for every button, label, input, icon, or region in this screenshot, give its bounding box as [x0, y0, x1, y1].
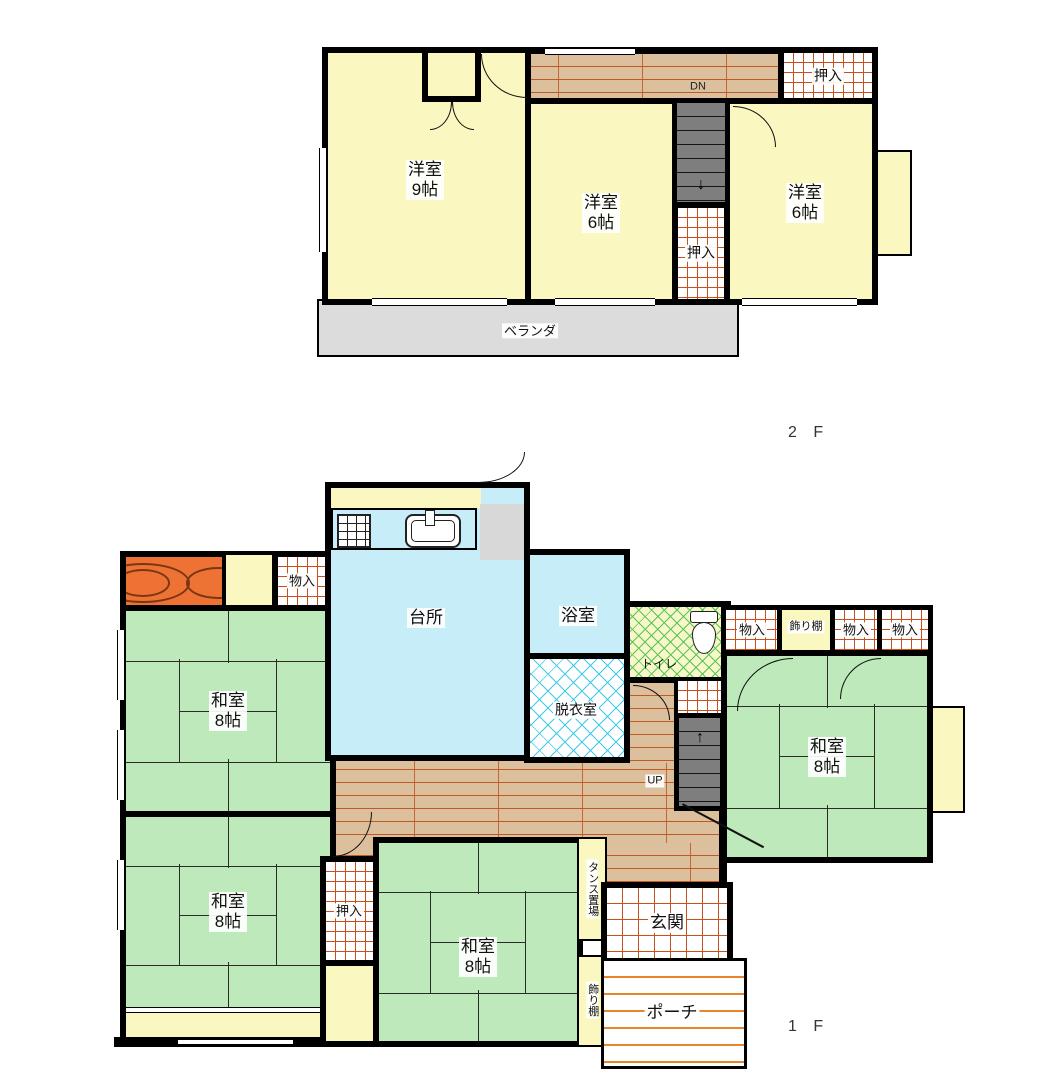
kitchen-window-strip: [331, 488, 481, 508]
label-tansu: タンス置場: [586, 860, 598, 919]
stairs-down-arrow-icon: ↓: [697, 177, 705, 193]
room-size: 8帖: [215, 912, 241, 931]
window: [742, 298, 857, 306]
room-size: 8帖: [215, 711, 241, 730]
label-monoire-r1: 物入: [737, 622, 767, 637]
label-oshiire-2f-topright: 押入: [812, 68, 844, 85]
room-name: 洋室: [408, 160, 442, 179]
tokonoma-alcove: [120, 551, 228, 611]
label-dressing: 脱衣室: [553, 702, 599, 719]
label-porch: ポーチ: [645, 1003, 700, 1023]
room-size: 8帖: [465, 957, 491, 976]
window: [372, 298, 507, 306]
closet-western9: [422, 47, 481, 102]
label-toilet: トイレ: [639, 657, 679, 671]
room-name: 和室: [461, 937, 495, 956]
window: [545, 48, 635, 55]
kitchen-counter: [331, 508, 477, 550]
window: [117, 630, 125, 700]
kitchen-entry-mat: [480, 504, 524, 560]
room-label-western6-right: 洋室 6帖: [786, 183, 824, 223]
toilet-icon: [689, 611, 719, 655]
room-label-western6-center: 洋室 6帖: [582, 193, 620, 233]
label-stairs-down: DN: [688, 81, 708, 94]
label-monoire-topleft: 物入: [287, 573, 317, 588]
corridor-1f-main: [331, 757, 725, 843]
label-bath: 浴室: [559, 606, 597, 626]
floor2-label: 2 F: [788, 424, 829, 442]
door-arc-kitchen-back: [478, 452, 525, 483]
room-name: 和室: [211, 691, 245, 710]
label-kazaridana-bottom: 飾り棚: [586, 982, 598, 1019]
closet-yellow-bottom: [320, 960, 379, 1047]
label-oshiire-2f-mid: 押入: [685, 245, 717, 262]
stairs-up-arrow-icon: ↑: [696, 730, 704, 746]
closet-under-stairs: [674, 677, 725, 717]
label-genkan: 玄関: [648, 913, 686, 933]
label-kazaridana-top: 飾り棚: [788, 621, 825, 634]
window: [117, 730, 125, 800]
room-label-western9: 洋室 9帖: [406, 160, 444, 200]
window: [178, 1039, 293, 1045]
room-size: 9帖: [412, 180, 438, 199]
room-bath: [524, 549, 630, 659]
room-name: 洋室: [788, 183, 822, 202]
floor1-label: 1 F: [788, 1018, 829, 1036]
room-name: 和室: [810, 737, 844, 756]
label-stairs-up: UP: [645, 775, 664, 788]
room-label-washitsu4: 和室 8帖: [808, 737, 846, 777]
room-size: 8帖: [814, 757, 840, 776]
closet-yellow-topleft: [222, 551, 278, 611]
label-veranda: ベランダ: [502, 323, 558, 338]
room-label-washitsu2: 和室 8帖: [209, 892, 247, 932]
window: [117, 860, 125, 930]
faucet-icon: [425, 510, 435, 526]
room-size: 6帖: [588, 213, 614, 232]
room-label-washitsu1: 和室 8帖: [209, 691, 247, 731]
label-oshiire-1f: 押入: [334, 903, 364, 918]
label-monoire-r2: 物入: [841, 622, 871, 637]
floor-plan: ↓ 洋室 9帖 洋室 6帖 洋室 6帖 押入 押入 DN ベランダ 2 F: [0, 0, 1042, 1072]
bay-window-2f: [874, 150, 912, 256]
label-kitchen: 台所: [407, 608, 445, 628]
label-monoire-r3: 物入: [890, 622, 920, 637]
room-name: 洋室: [584, 193, 618, 212]
room-name: 和室: [211, 892, 245, 911]
room-size: 6帖: [792, 203, 818, 222]
room-label-washitsu3: 和室 8帖: [459, 937, 497, 977]
stairs-1f: [674, 713, 725, 811]
window: [555, 298, 655, 306]
window: [319, 148, 327, 252]
stove-icon: [337, 514, 371, 548]
